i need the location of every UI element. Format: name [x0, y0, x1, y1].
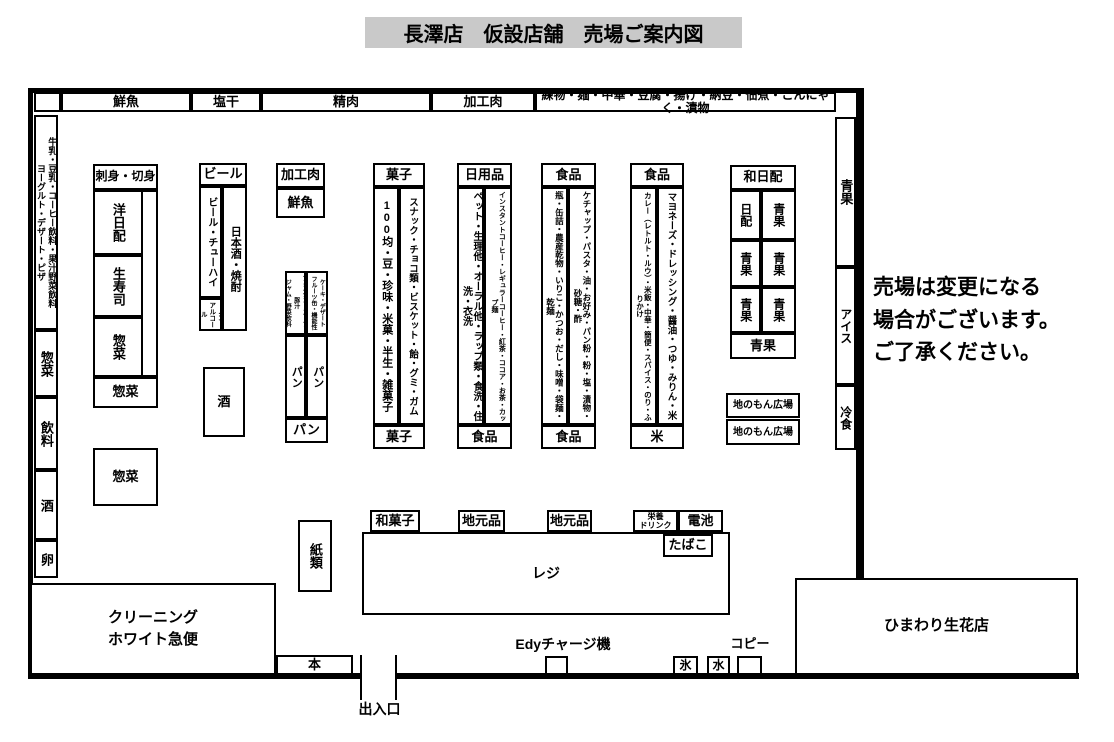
shelf-eggs: 卵: [34, 540, 58, 578]
shelf-snacks-right: スナック・チョコ類・ビスケット・飴・グミ・ガム: [399, 187, 425, 425]
shelf-milk-dairy: 牛乳・豆乳・コーヒー飲料・果汁野菜飲料 ヨーグルト・デザート・ピザ: [34, 115, 58, 330]
shelf-food1-right: ケチャップ・パスタ・油・お好み・パン粉・粉・塩・漬物・砂糖・酢: [568, 187, 596, 425]
shelf-food2-left: カレー（レトルト・ルウ）・米飯・中華・簡便・スパイス・のり・ふりかけ: [630, 187, 657, 425]
shelf-meat: 精肉: [261, 92, 431, 112]
store-map: 長澤店 仮設店舗 売場ご案内図 売場は変更になる 場合がございます。 ご了承くだ…: [0, 0, 1114, 742]
shelf-souzai-square: 惣菜: [93, 448, 158, 506]
water-box: 水: [707, 656, 730, 675]
shelf-local-products-1: 地元品: [458, 510, 505, 532]
shelf-food1-top: 食品: [541, 163, 596, 187]
shelf-tobacco: たばこ: [663, 534, 713, 557]
shelf-daily-goods-top: 日用品: [457, 163, 512, 187]
shelf-soup-jam-header: インスタントスープ・豚汁 ジャム・野菜飲料: [285, 271, 306, 335]
top-row-empty-cell: [34, 92, 61, 112]
shelf-wagashi: 和菓子: [370, 510, 420, 532]
shelf-produce-wall: 青果: [835, 117, 856, 267]
shelf-produce-cell: 青果: [730, 287, 761, 333]
shelf-fresh-fish: 鮮魚: [61, 92, 191, 112]
shelf-western-daily: 洋日配: [93, 190, 143, 255]
shelf-beverages: 飲料: [34, 397, 58, 470]
shelf-food1-left: 瓶・缶詰・農産乾物・いりこ・かつお・だし・味噌・袋麺・乾麺: [541, 187, 568, 425]
shelf-produce-cell: 青果: [730, 240, 761, 287]
page-title: 長澤店 仮設店舗 売場ご案内図: [365, 17, 742, 48]
flower-shop: ひまわり生花店: [795, 578, 1078, 675]
shelf-sashimi: 刺身・切身: [93, 164, 158, 190]
shelf-bread-right: パン: [306, 335, 328, 418]
shelf-local-products-2: 地元品: [547, 510, 592, 532]
shelf-neri-etc: 練物・麺・中華・豆腐・揚げ・納豆・佃煮・こんにゃく・漬物: [535, 92, 836, 112]
entrance-tick-left: [360, 655, 362, 700]
shelf-snacks-bottom: 菓子: [373, 425, 425, 449]
shelf-produce-cell: 青果: [761, 240, 796, 287]
shelf-fresh-fish-corner: 鮮魚: [276, 188, 325, 218]
shelf-wa-nippai-top: 和日配: [730, 165, 796, 190]
shelf-frozen-food: 冷食: [835, 385, 856, 450]
shelf-bread-left: パン: [285, 335, 306, 418]
shelf-energy-drink: 栄養 ドリンク: [633, 510, 678, 532]
shelf-cake-dessert-header: ケーキ・デザート フルーツ缶・機能性: [306, 271, 328, 335]
copy-label: コピー: [725, 636, 775, 652]
notice-text: 売場は変更になる 場合がございます。 ご了承ください。: [873, 272, 1113, 370]
shelf-fresh-sushi: 生寿司: [93, 255, 143, 317]
copy-machine: [737, 656, 762, 675]
shelf-processed-meat-corner: 加工肉: [276, 163, 325, 188]
shelf-ice-cream: アイス: [835, 267, 856, 385]
shelf-rice-bottom: 米: [630, 425, 684, 449]
shelf-sake-box: 酒: [203, 367, 245, 437]
shelf-daily-goods-left: ペット・生理他・オーラル他・ラップ類・食洗・住洗・衣洗: [457, 187, 484, 425]
shelf-souzai-wide: 惣菜: [93, 377, 158, 408]
shelf-food2-top: 食品: [630, 163, 684, 187]
shelf-paper-goods: 紙類: [298, 520, 332, 592]
edy-charge-label: Edyチャージ機: [498, 636, 628, 654]
wall-right: [856, 88, 864, 580]
shelf-souzai-vertical: 惣菜: [93, 317, 143, 377]
shelf-processed-meat: 加工肉: [431, 92, 535, 112]
shelf-nippai-cell: 日配: [730, 190, 761, 240]
shelf-souzai-wall: 惣菜: [34, 330, 58, 397]
entrance-label: 出入口: [352, 700, 407, 720]
ice-box: 氷: [673, 656, 698, 675]
entrance-tick-right: [395, 655, 397, 700]
shelf-produce-cell: 青果: [761, 190, 796, 240]
shelf-battery: 電池: [678, 510, 723, 532]
shelf-nihonshu-shochu: 日本酒・焼酎: [222, 186, 247, 331]
shelf-daily-goods-bottom: 食品: [457, 425, 512, 449]
shelf-local-plaza-1: 地のもん広場: [726, 393, 800, 418]
cleaning-counter: クリーニング ホワイト急便: [30, 583, 276, 675]
left-aisle-empty-strip: [141, 190, 158, 377]
shelf-beer-top: ビール: [199, 163, 247, 186]
shelf-beer-chuhai: ビール・チューハイ: [199, 186, 222, 298]
shelf-produce-cell: 青果: [761, 287, 796, 333]
shelf-food2-right: マヨネーズ・ドレッシング・醤油・つゆ・みりん・米: [657, 187, 684, 425]
shelf-food1-bottom: 食品: [541, 425, 596, 449]
shelf-snacks-top: 菓子: [373, 163, 425, 187]
shelf-bread-bottom: パン: [285, 418, 328, 443]
shelf-coffee-tea: インスタントコーヒー・レギュラーコーヒー・紅茶・ココア・お茶・カップ麺: [484, 187, 512, 425]
edy-charge-machine: [545, 656, 568, 675]
shelf-snacks-left: 100均・豆・珍味・米菓・半生・雑菓子: [373, 187, 399, 425]
shelf-non-alcohol: ノン アルコール: [199, 298, 222, 331]
shelf-salted-dried: 塩干: [191, 92, 261, 112]
shelf-books: 本: [276, 655, 353, 675]
shelf-produce-wide: 青果: [730, 333, 796, 359]
shelf-local-plaza-2: 地のもん広場: [726, 419, 800, 445]
shelf-sake-wall: 酒: [34, 470, 58, 540]
